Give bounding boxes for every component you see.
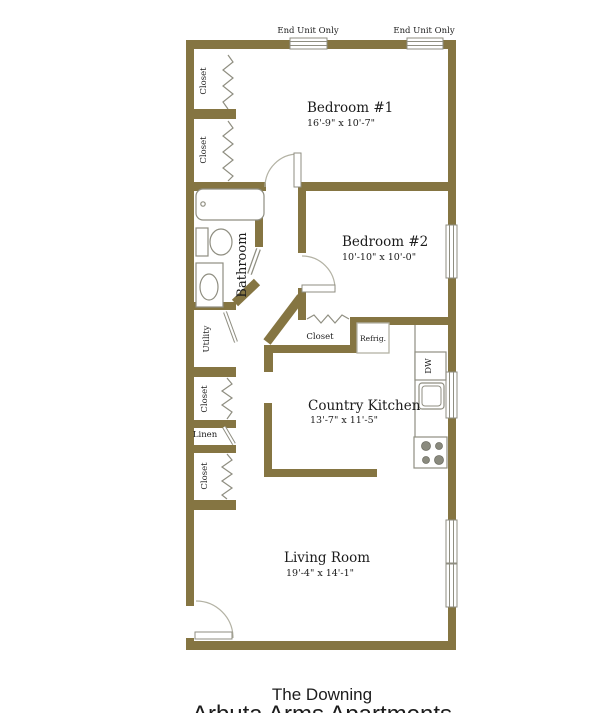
- linen-label: Linen: [193, 430, 218, 440]
- floor-plan-page: End Unit Only End Unit Only Bedroom #1 1…: [0, 0, 612, 713]
- window-top-2: [407, 38, 443, 49]
- title-block: The Downing Arbuta Arms Apartments: [192, 685, 452, 713]
- bathroom-door-leaf: [250, 249, 259, 274]
- closet3-accordion-door: [222, 378, 232, 419]
- living-room-dims: 19'-4" x 14'-1": [286, 568, 354, 579]
- end-unit-note-2: End Unit Only: [393, 26, 454, 36]
- wall-bottom: [186, 641, 456, 650]
- floor-plan-svg: End Unit Only End Unit Only Bedroom #1 1…: [0, 0, 612, 713]
- living-room-name: Living Room: [284, 550, 370, 566]
- window-top-1: [290, 38, 327, 49]
- wall-left-upper: [186, 40, 194, 606]
- wall-hall-diagonal: [267, 297, 301, 342]
- closet2-accordion-door: [223, 121, 233, 181]
- property-name: Arbuta Arms Apartments: [192, 701, 452, 713]
- utility-label: Utility: [202, 325, 212, 352]
- window-kitchen: [446, 372, 457, 418]
- bathtub-drain: [201, 202, 205, 206]
- closet4-label: Closet: [200, 462, 210, 490]
- entry-door-leaf: [195, 632, 232, 639]
- toilet-bowl: [210, 229, 232, 255]
- kitchen-fixtures: [357, 323, 447, 468]
- stove-burner: [423, 457, 430, 464]
- wall-kitchen-west-lower: [264, 403, 272, 477]
- utility-door-leaf: [225, 312, 236, 342]
- stove-burner: [436, 443, 443, 450]
- closet3-label: Closet: [200, 385, 210, 413]
- kitchen-dims: 13'-7" x 11'-5": [310, 415, 378, 426]
- linen-door-leaf: [224, 427, 234, 444]
- bedroom2-door-arc: [302, 256, 335, 289]
- wall-bedroom2-west-upper: [298, 191, 306, 253]
- end-unit-note-1: End Unit Only: [277, 26, 338, 36]
- bedroom1-door-arc: [265, 154, 298, 187]
- toilet-tank: [196, 228, 208, 256]
- vanity-sink: [200, 274, 218, 300]
- closet2-label: Closet: [199, 136, 209, 164]
- closet1-accordion-door: [223, 55, 233, 109]
- wall-closet3-south: [186, 420, 236, 428]
- bedroom2-dims: 10'-10" x 10'-0": [342, 252, 416, 263]
- refrigerator-label: Refrig.: [360, 334, 386, 343]
- wall-linen-south: [186, 445, 236, 453]
- wall-closet4-south: [186, 500, 236, 510]
- window-bedroom2: [446, 225, 457, 278]
- dishwasher-label: DW: [424, 358, 434, 374]
- window-living-room: [446, 520, 457, 607]
- bathtub: [196, 189, 264, 220]
- closet4-accordion-door: [222, 454, 232, 499]
- wall-closet1-closet2-divider: [186, 109, 236, 119]
- wall-bed2closet-south: [264, 345, 358, 353]
- bathroom-name: Bathroom: [235, 232, 250, 297]
- kitchen-name: Country Kitchen: [308, 398, 421, 414]
- wall-kitchen-south: [264, 469, 377, 477]
- closet1-label: Closet: [199, 67, 209, 95]
- bedroom2-door-leaf: [302, 285, 335, 292]
- wall-utility-south: [186, 367, 236, 377]
- doors: [195, 153, 335, 639]
- bedroom2-closet-accordion-door: [307, 315, 349, 323]
- stove-burner: [422, 442, 431, 451]
- bedroom2-closet-label: Closet: [306, 332, 334, 342]
- bedroom1-door-leaf: [294, 153, 301, 187]
- wall-bedroom1-bottom-right: [298, 182, 456, 191]
- kitchen-sink-inner: [422, 386, 441, 406]
- bedroom2-name: Bedroom #2: [342, 234, 428, 250]
- bedroom1-dims: 16'-9" x 10'-7": [307, 118, 375, 129]
- bedroom1-name: Bedroom #1: [307, 100, 393, 116]
- stove-burner: [435, 456, 444, 465]
- wall-kitchen-west-upper: [264, 345, 273, 372]
